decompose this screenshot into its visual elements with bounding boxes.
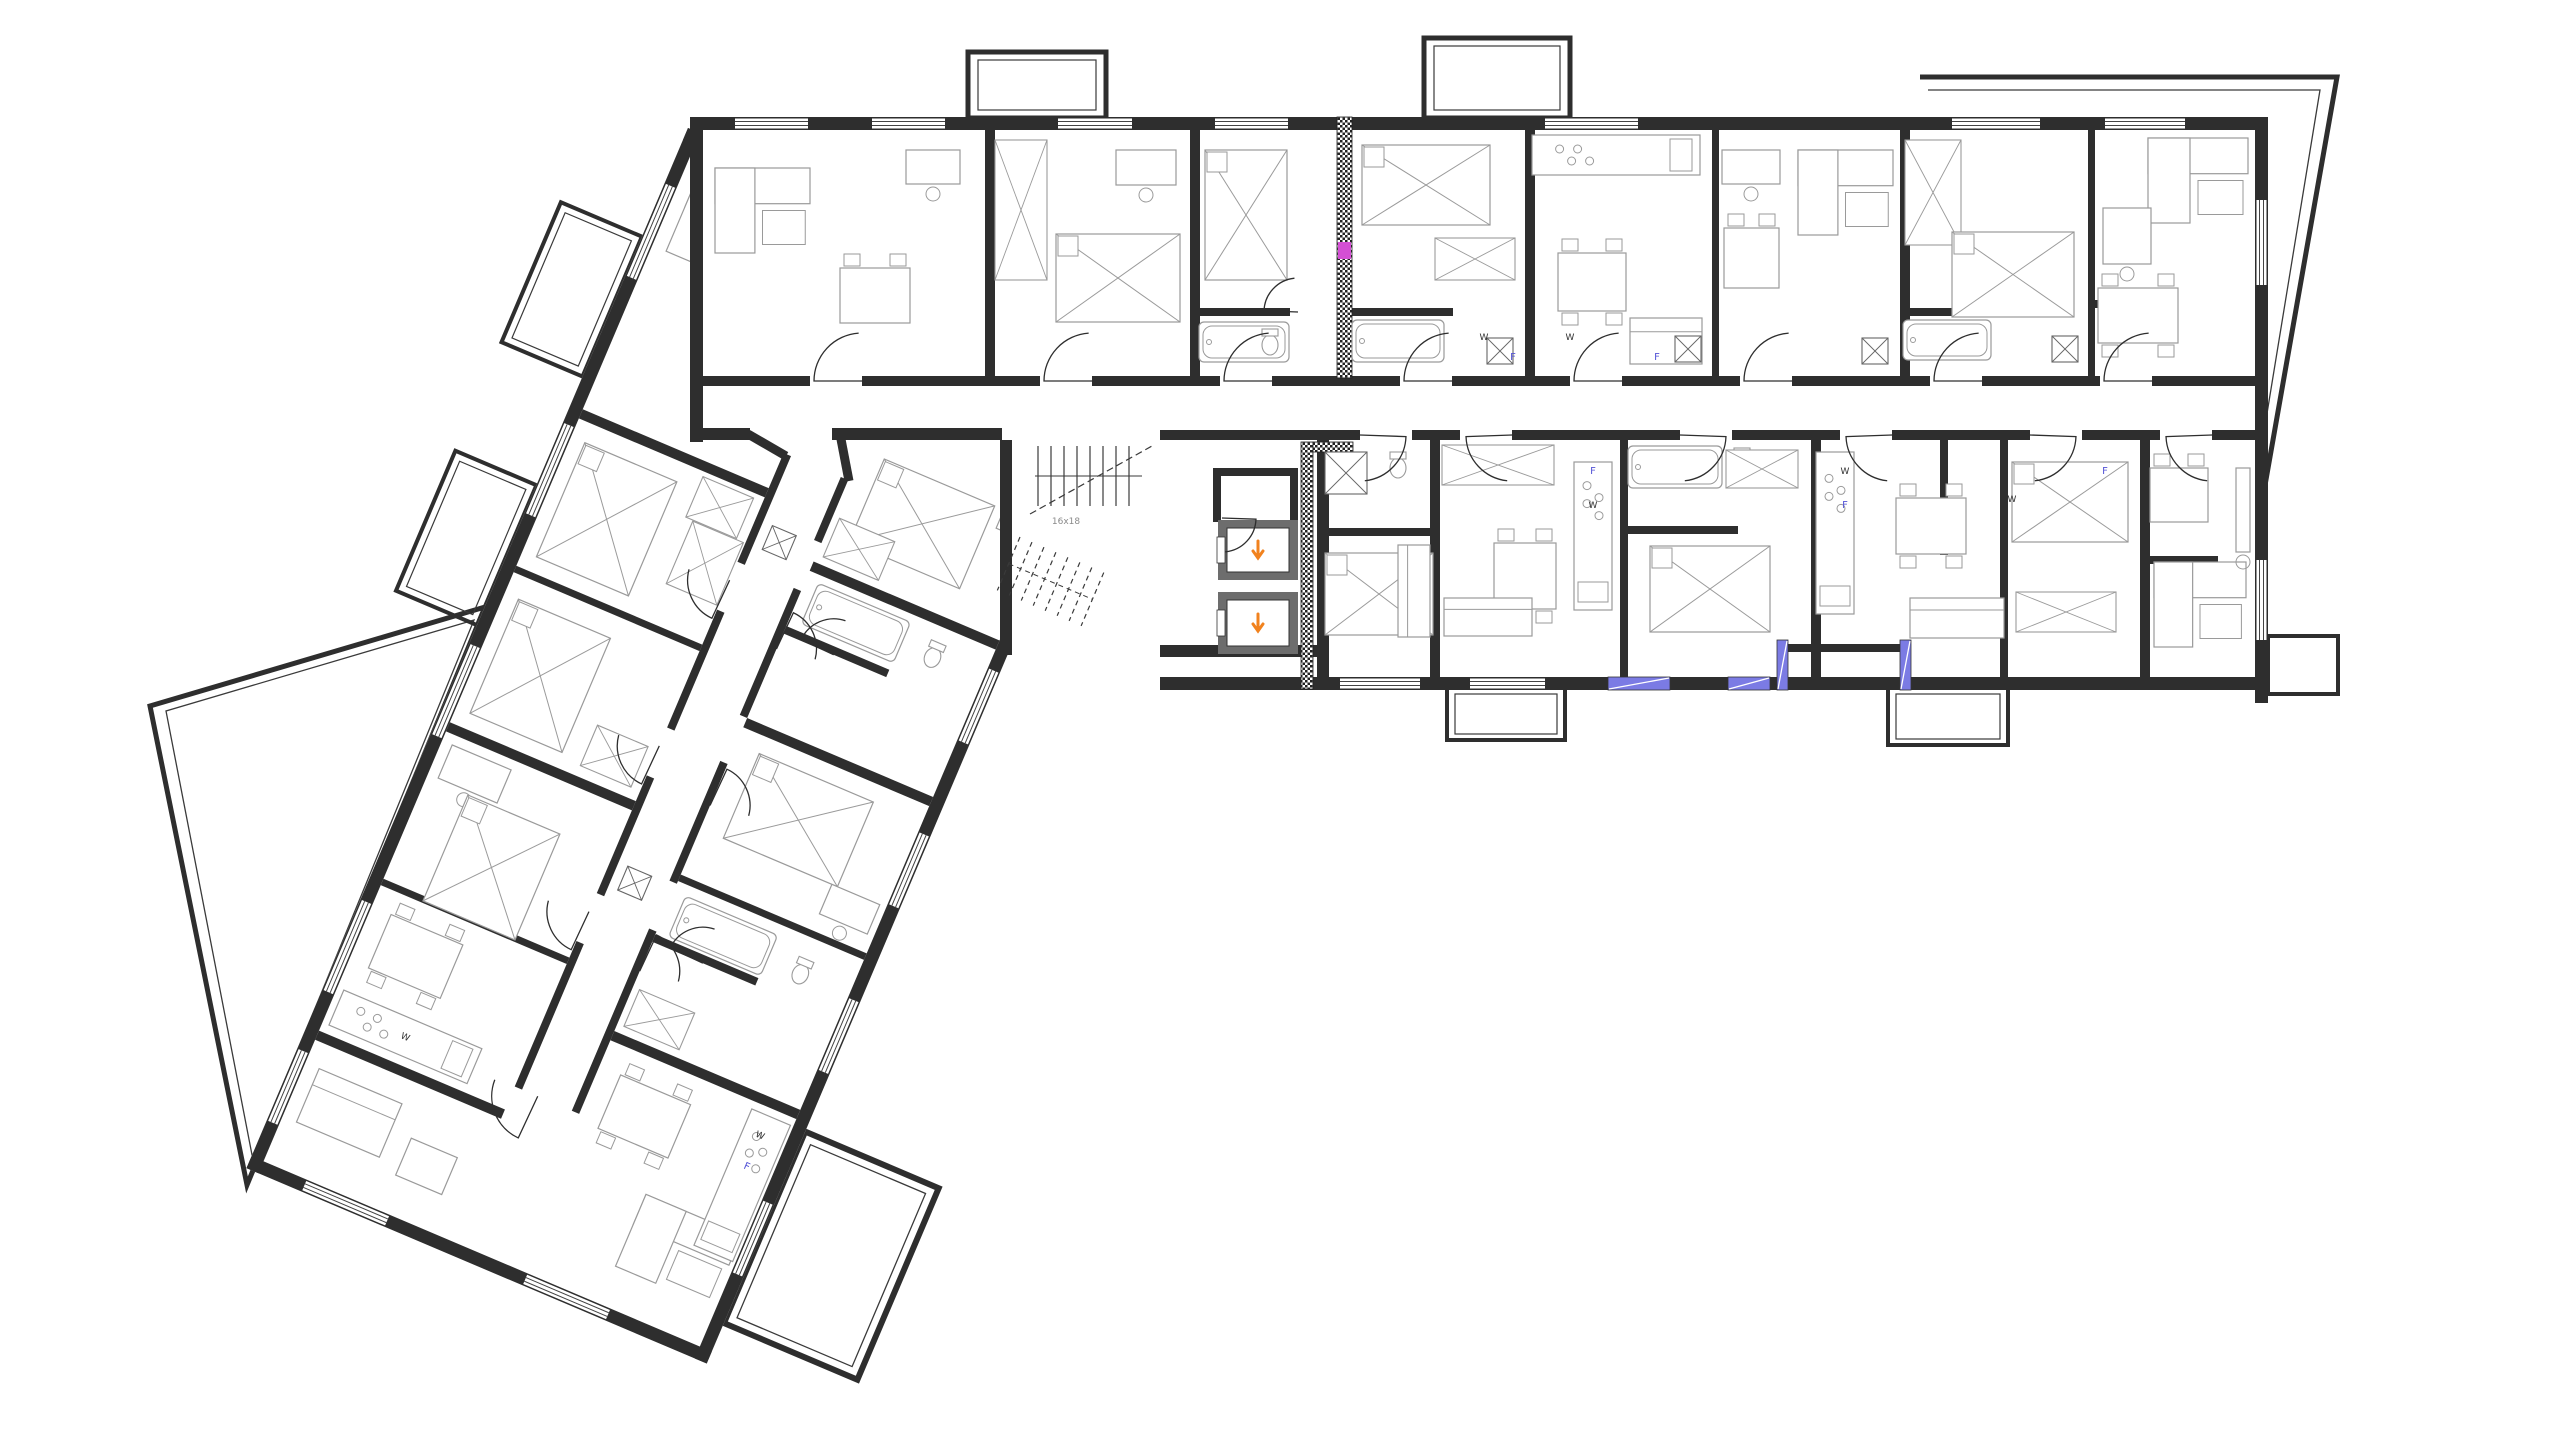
- window: [872, 119, 945, 129]
- rect: [2103, 208, 2151, 264]
- bed: [2012, 462, 2128, 542]
- wall: [1190, 308, 1290, 316]
- wall: [1000, 440, 1012, 655]
- rect: [1606, 313, 1622, 325]
- rect: [1798, 150, 1838, 235]
- wall: [1290, 468, 1298, 522]
- window: [2105, 119, 2185, 129]
- balcony-outline: [2268, 636, 2338, 694]
- wall: [1788, 644, 1900, 652]
- window: [2257, 560, 2267, 640]
- floor-plan-svg: FWWFW 16x18FWFWFWWFWF: [0, 0, 2560, 1440]
- wall: [1213, 468, 1221, 522]
- corner-sofa: [2154, 562, 2246, 647]
- bathtub: [1903, 320, 1991, 360]
- bathtub: [1352, 320, 1444, 362]
- coffee-table: [2198, 181, 2243, 215]
- sofa: [1444, 598, 1532, 636]
- corner-sofa: [2148, 138, 2248, 223]
- rect: [1900, 484, 1916, 496]
- coffee-table: [2200, 605, 2241, 639]
- toilet: [1262, 329, 1278, 355]
- rect: [1628, 446, 1722, 488]
- rect: [840, 268, 910, 323]
- sofa: [1910, 598, 2004, 638]
- wall: [703, 376, 810, 386]
- window: [2257, 200, 2267, 285]
- wall: [2082, 430, 2160, 440]
- balcony-outline: [1434, 46, 1560, 110]
- balcony-outline: [968, 52, 1106, 118]
- wall: [1213, 468, 1298, 476]
- wall: [2088, 130, 2095, 376]
- balcony-outline: [978, 60, 1096, 110]
- annotation: 16x18: [1052, 517, 1081, 527]
- rect: [906, 150, 960, 184]
- wall: [1982, 376, 2100, 386]
- annotation: W: [1480, 333, 1489, 343]
- rect: [844, 254, 860, 266]
- wall: [985, 130, 995, 376]
- wall: [1512, 430, 1680, 440]
- rect: [890, 254, 906, 266]
- bed: [1952, 232, 2074, 317]
- window: [1058, 119, 1132, 129]
- window: [1470, 679, 1545, 689]
- bed: [1205, 150, 1287, 280]
- rect: [1728, 214, 1744, 226]
- wardrobe-x: [1435, 238, 1515, 280]
- balcony-outline: [1888, 688, 2008, 745]
- wall: [1452, 376, 1570, 386]
- expansion-joint: [1313, 442, 1353, 452]
- shaft-x: [1862, 338, 1888, 364]
- rect: [2148, 138, 2190, 223]
- wall: [1160, 430, 1360, 440]
- window: [1215, 119, 1288, 129]
- wall: [1412, 430, 1460, 440]
- wardrobe-x: [1905, 140, 1961, 245]
- rect: [1058, 236, 1078, 256]
- sofa: [1398, 545, 1430, 637]
- annotation: F: [1842, 500, 1848, 511]
- balcony-outline: [1455, 694, 1557, 734]
- bed: [1650, 546, 1770, 632]
- elevator-door: [1217, 537, 1225, 563]
- rect: [1116, 150, 1176, 185]
- toilet: [1390, 452, 1406, 478]
- rect: [1207, 152, 1227, 172]
- annotation: W: [1841, 467, 1850, 477]
- balcony-outline: [1896, 694, 2000, 739]
- rect: [1946, 556, 1962, 568]
- shaft-x: [1487, 338, 1513, 364]
- shaft-x: [2052, 336, 2078, 362]
- rect: [1910, 598, 2004, 638]
- wall: [1160, 677, 2268, 690]
- rect: [1558, 253, 1626, 311]
- wardrobe-x: [995, 140, 1047, 280]
- wall: [1892, 430, 2030, 440]
- rect: [715, 168, 755, 253]
- window: [1340, 679, 1420, 689]
- rect: [1724, 228, 1779, 288]
- window: [1545, 119, 1638, 129]
- rect: [1536, 529, 1552, 541]
- annotation: F: [1590, 466, 1596, 477]
- wardrobe-x: [2016, 592, 2116, 632]
- rect: [2158, 345, 2174, 357]
- rect: [1946, 484, 1962, 496]
- rect: [2236, 468, 2250, 552]
- rect: [1536, 611, 1552, 623]
- rect: [1327, 555, 1347, 575]
- rect: [1820, 586, 1850, 606]
- rect: [1578, 582, 1608, 602]
- rect: [1364, 147, 1384, 167]
- rect: [1903, 320, 1991, 360]
- rect: [2150, 468, 2208, 522]
- wall: [1620, 440, 1628, 677]
- rect: [1562, 313, 1578, 325]
- ellipse: [1262, 335, 1278, 355]
- wall: [690, 428, 750, 440]
- wall: [2152, 376, 2255, 386]
- bed: [1056, 234, 1180, 322]
- wall: [1272, 376, 1400, 386]
- wall: [1792, 376, 1930, 386]
- annotation: W: [1566, 333, 1575, 343]
- rect: [2188, 454, 2204, 466]
- rect: [2158, 274, 2174, 286]
- wall: [2212, 430, 2255, 440]
- bathtub: [1628, 446, 1722, 488]
- rect: [1606, 239, 1622, 251]
- bed: [1362, 145, 1490, 225]
- shaft-x: [1675, 336, 1701, 362]
- coffee-table: [1846, 193, 1889, 227]
- wall: [832, 428, 1002, 440]
- rect: [2154, 454, 2170, 466]
- rect: [1444, 598, 1532, 636]
- wall: [862, 376, 1040, 386]
- rect: [1390, 452, 1406, 459]
- annotation: F: [1654, 352, 1660, 363]
- rect: [1896, 498, 1966, 554]
- elevator: [1217, 520, 1298, 580]
- expansion-joint: [1301, 442, 1313, 689]
- wall: [1345, 308, 1453, 316]
- wall: [1317, 528, 1432, 536]
- wall: [1622, 376, 1740, 386]
- annotation: F: [1510, 352, 1516, 363]
- rect: [2102, 345, 2118, 357]
- wall: [2000, 440, 2008, 677]
- coffee-table: [763, 211, 806, 245]
- shaft-x: [1325, 452, 1367, 494]
- corner-sofa: [715, 168, 810, 253]
- wall: [1732, 430, 1840, 440]
- kitchen-counter: [1574, 462, 1612, 610]
- wall: [1620, 526, 1738, 534]
- floorplan-page: FWWFW 16x18FWFWFWWFWF: [0, 0, 2560, 1440]
- rect: [2154, 562, 2193, 647]
- annotation: F: [2102, 466, 2108, 477]
- annotation: W: [2008, 495, 2017, 505]
- kitchen-counter: [1532, 135, 1700, 175]
- corner-sofa: [1798, 150, 1893, 235]
- elevator: [1217, 592, 1298, 654]
- rect: [1759, 214, 1775, 226]
- balcony-outline: [1424, 38, 1570, 118]
- balcony-outline: [1447, 688, 1565, 740]
- rect: [2102, 274, 2118, 286]
- rect: [2014, 464, 2034, 484]
- rect: [1398, 545, 1430, 637]
- rect: [1498, 529, 1514, 541]
- rect: [1562, 239, 1578, 251]
- wardrobe-x: [1726, 450, 1798, 488]
- window: [1952, 119, 2040, 129]
- rect: [1652, 548, 1672, 568]
- wall: [690, 117, 703, 442]
- rect: [1900, 556, 1916, 568]
- rect: [1262, 329, 1278, 336]
- annotation: W: [1589, 501, 1598, 511]
- elevator-door: [1217, 610, 1225, 636]
- rect: [1954, 234, 1974, 254]
- rect: [1670, 139, 1692, 171]
- wall: [1092, 376, 1220, 386]
- rect: [1352, 320, 1444, 362]
- rect: [1722, 150, 1780, 184]
- wall: [1712, 130, 1719, 376]
- balcony-outline: [1338, 242, 1351, 259]
- window: [735, 119, 808, 129]
